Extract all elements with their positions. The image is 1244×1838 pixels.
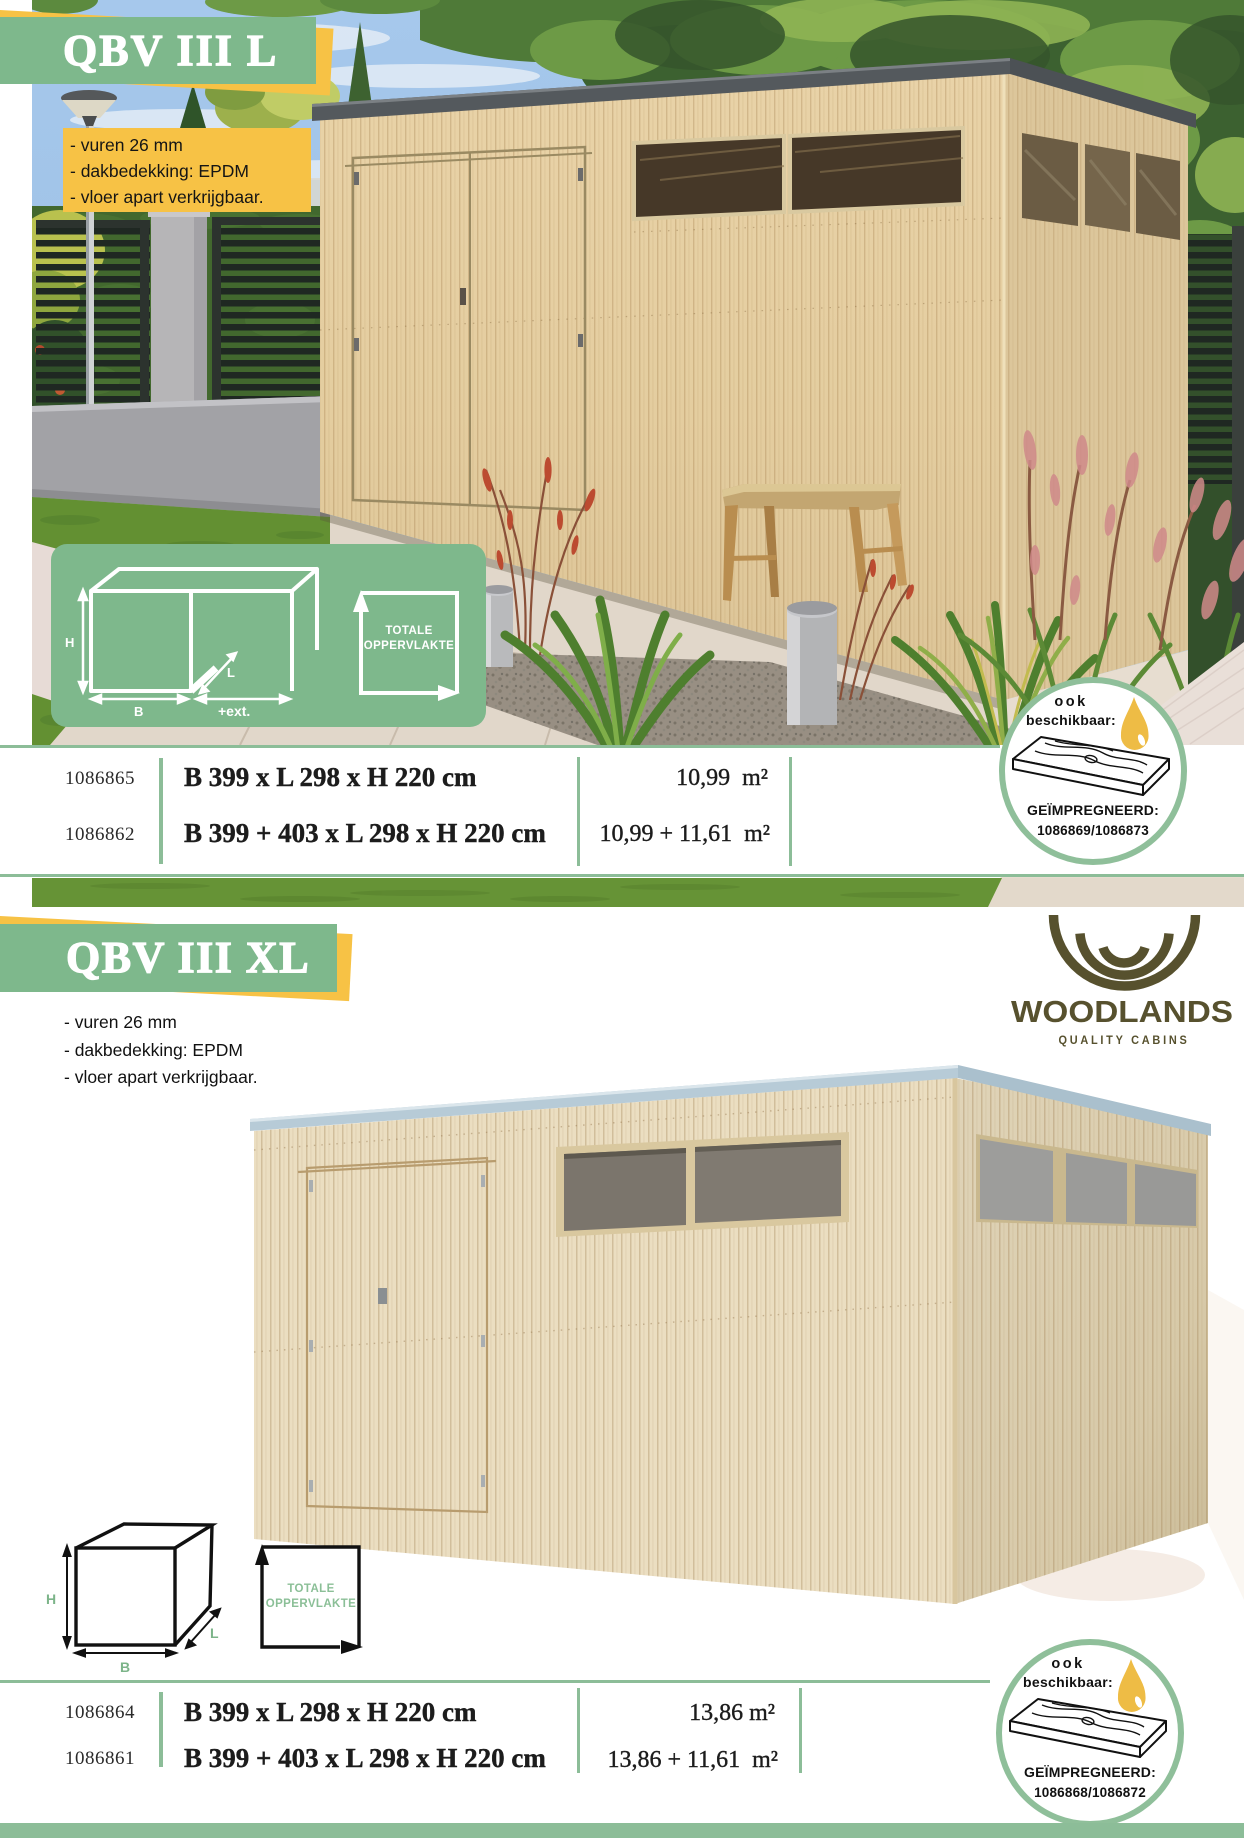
svg-text:WOODLANDS: WOODLANDS [1011, 994, 1233, 1029]
svg-text:GEÏMPREGNEERD:: GEÏMPREGNEERD: [1027, 802, 1159, 818]
svg-text:QUALITY CABINS: QUALITY CABINS [1059, 1033, 1190, 1047]
svg-text:OPPERVLAKTE: OPPERVLAKTE [266, 1598, 356, 1610]
svg-text:TOTALE: TOTALE [287, 1583, 334, 1595]
svg-text:1086868/1086872: 1086868/1086872 [1034, 1785, 1146, 1800]
svg-text:TOTALE: TOTALE [385, 625, 432, 637]
svg-text:B: B [120, 1659, 130, 1675]
svg-text:beschikbaar:: beschikbaar: [1026, 712, 1116, 728]
svg-text:L: L [210, 1625, 219, 1641]
svg-text:1086869/1086873: 1086869/1086873 [1037, 823, 1149, 838]
svg-text:beschikbaar:: beschikbaar: [1023, 1674, 1113, 1690]
svg-text:ook: ook [1051, 1656, 1084, 1672]
svg-text:H: H [65, 635, 74, 650]
svg-text:ook: ook [1054, 694, 1087, 710]
svg-text:+ext.: +ext. [218, 703, 250, 719]
svg-text:L: L [227, 665, 235, 680]
svg-text:B: B [134, 704, 143, 719]
svg-text:H: H [46, 1591, 56, 1607]
svg-text:OPPERVLAKTE: OPPERVLAKTE [364, 640, 454, 652]
svg-text:GEÏMPREGNEERD:: GEÏMPREGNEERD: [1024, 1764, 1156, 1780]
